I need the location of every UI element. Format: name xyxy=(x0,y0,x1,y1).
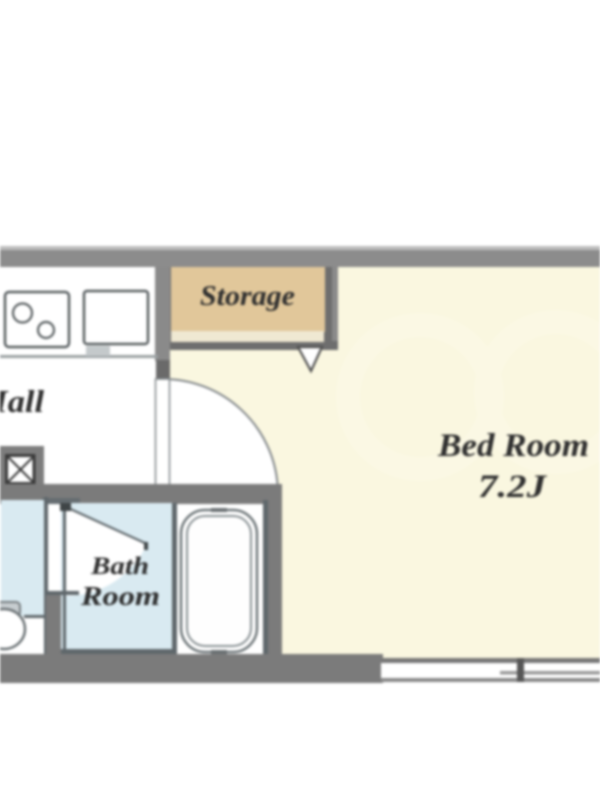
svg-text:Hall: Hall xyxy=(0,383,44,419)
svg-text:Storage: Storage xyxy=(200,281,295,312)
svg-text:Bath: Bath xyxy=(90,553,149,580)
svg-text:Room: Room xyxy=(80,581,160,611)
svg-text:7.2J: 7.2J xyxy=(478,469,548,505)
svg-text:Bed Room: Bed Room xyxy=(437,428,589,464)
